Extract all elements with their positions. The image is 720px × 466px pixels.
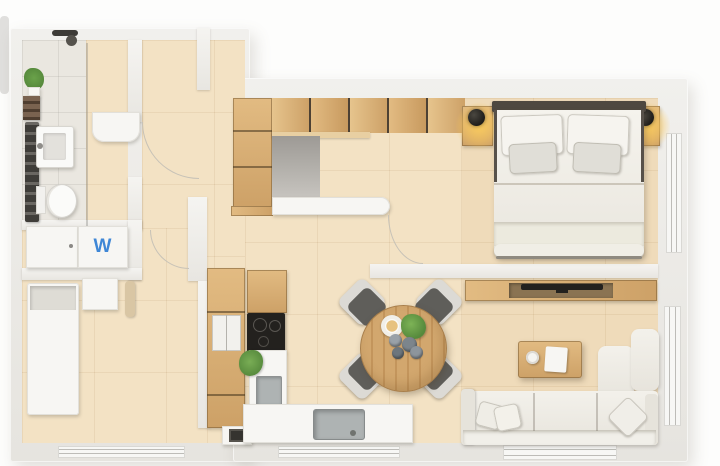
white-desk bbox=[272, 197, 390, 215]
bed-pillow-small-left bbox=[508, 142, 558, 174]
wall-bedroom-living-divider bbox=[370, 264, 658, 278]
table-plant-icon bbox=[401, 314, 426, 339]
upper-cabinet-row bbox=[272, 98, 465, 133]
burner-icon-1 bbox=[253, 318, 267, 332]
duvet-foot-band bbox=[494, 222, 644, 246]
footboard-line bbox=[496, 256, 642, 259]
hall-wardrobe-line2 bbox=[233, 166, 272, 168]
basin-faucet-icon bbox=[37, 143, 43, 149]
burner-icon-2 bbox=[269, 320, 281, 332]
kitchen-cabinet-line1 bbox=[207, 311, 245, 313]
bed-rail-left bbox=[494, 110, 497, 182]
hall-wardrobe-line1 bbox=[233, 130, 272, 132]
bathroom-shelf bbox=[23, 96, 40, 120]
toilet-bowl bbox=[46, 184, 77, 218]
washing-machine: W bbox=[78, 226, 128, 268]
wardrobe-open-shelf bbox=[30, 286, 76, 310]
shower-glass-partition bbox=[86, 43, 88, 227]
window-bottom-center bbox=[278, 446, 400, 458]
main-sink bbox=[313, 409, 365, 440]
washing-machine-label: W bbox=[94, 236, 113, 258]
sink-faucet-icon bbox=[350, 430, 356, 436]
exterior-shadow bbox=[0, 16, 9, 94]
plant-pot bbox=[28, 87, 40, 96]
wall-entry-stub bbox=[197, 28, 210, 90]
radiator-pipe bbox=[125, 281, 135, 317]
upper-cabinet-door bbox=[389, 98, 426, 133]
burner-icon-3 bbox=[258, 336, 269, 347]
upper-cabinet-door bbox=[311, 98, 348, 133]
upper-cabinet-door bbox=[350, 98, 387, 133]
upper-cabinet-door bbox=[272, 98, 309, 133]
duvet-fold-line bbox=[494, 183, 644, 185]
sofa-pillow-2 bbox=[493, 403, 523, 433]
washbasin-bowl bbox=[43, 133, 66, 160]
storage-box bbox=[82, 278, 118, 310]
decor-bowl-icon bbox=[392, 347, 404, 359]
hall-wardrobe-base bbox=[231, 206, 273, 216]
chaise-ottoman bbox=[631, 329, 659, 391]
desk-area bbox=[272, 136, 320, 198]
decor-bowl-icon bbox=[389, 334, 402, 347]
bed-pillow-small-right bbox=[572, 142, 622, 174]
window-living-right bbox=[664, 306, 681, 426]
bedside-lamp-left-icon bbox=[468, 109, 485, 126]
hall-wall-cabinet bbox=[92, 112, 140, 142]
window-bedroom-right bbox=[666, 133, 682, 253]
shower-head-icon bbox=[66, 35, 77, 46]
hall-tall-wardrobe bbox=[233, 98, 272, 208]
window-bottom-left bbox=[58, 446, 185, 458]
floor-plan: W bbox=[0, 0, 720, 466]
cooktop bbox=[247, 313, 285, 353]
wall-storage-stub bbox=[188, 197, 207, 281]
tv-stand-icon bbox=[556, 290, 568, 293]
cabinet-knob-icon bbox=[69, 244, 73, 248]
sofa-seat-seam bbox=[533, 393, 535, 431]
laptop-icon bbox=[544, 346, 568, 372]
sofa-seat-seam bbox=[596, 393, 598, 431]
wall-bathroom-upper bbox=[128, 40, 142, 122]
coffee-cup-icon bbox=[385, 319, 399, 333]
prep-sink bbox=[256, 376, 282, 406]
bed-rail-right bbox=[641, 110, 644, 182]
kitchen-counter-upper bbox=[247, 270, 287, 313]
decor-bowl-icon bbox=[410, 346, 423, 359]
window-living-balcony bbox=[503, 445, 617, 460]
fridge-door-split bbox=[226, 315, 227, 351]
kitchen-cabinet-line2 bbox=[207, 394, 245, 396]
table-cup-icon bbox=[526, 351, 539, 364]
toilet-cistern bbox=[36, 186, 46, 214]
